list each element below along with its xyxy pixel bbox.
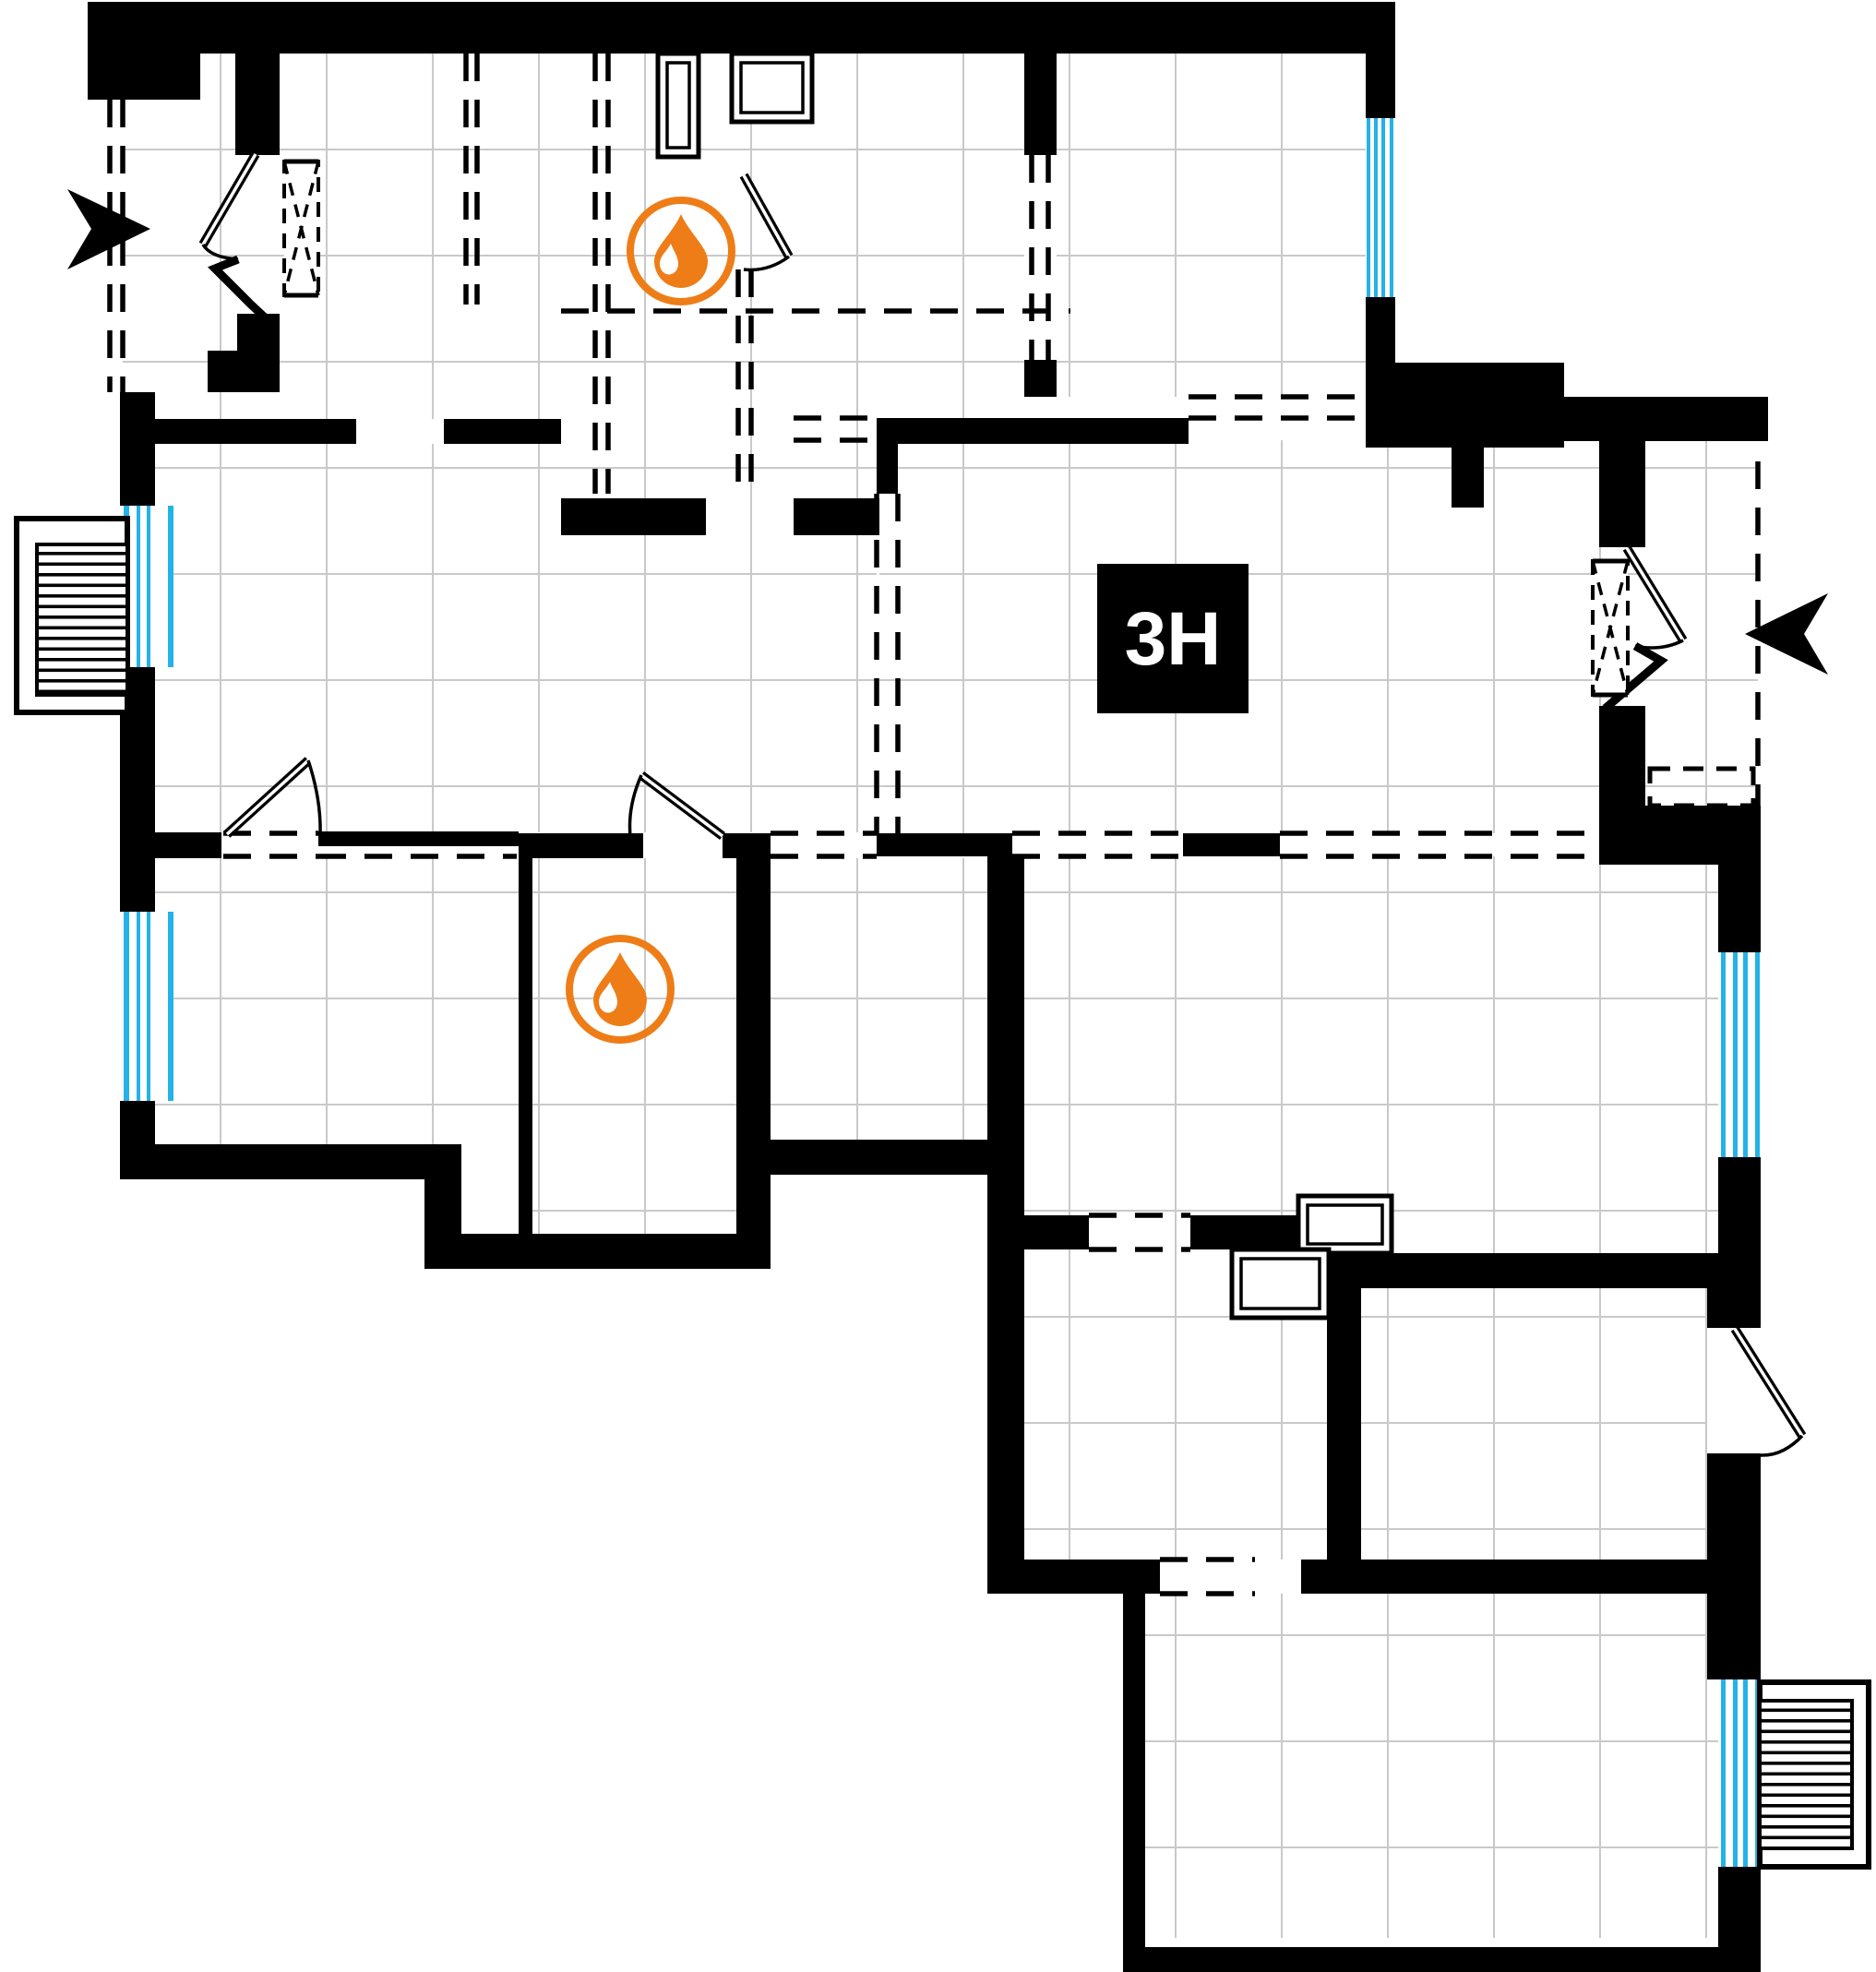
- radiator-fins: [1760, 1701, 1852, 1848]
- wall-segment: [1599, 441, 1645, 547]
- unit-label-group: 3Н: [1097, 564, 1249, 713]
- window-glazing-line: [1743, 952, 1748, 1157]
- wall-segment: [1707, 1288, 1761, 1328]
- radiator-grille: [1760, 1682, 1869, 1867]
- wall-segment: [1123, 1594, 1145, 1972]
- window-glazing-line: [147, 912, 150, 1101]
- window-glazing-line: [124, 912, 129, 1101]
- wall-segment: [1643, 806, 1761, 865]
- window-glazing-line: [137, 912, 140, 1101]
- room-floor: [1361, 1288, 1707, 1560]
- wall-segment: [88, 2, 200, 100]
- wall-segment: [503, 419, 510, 444]
- wall-segment: [1301, 1560, 1718, 1594]
- floor-plan-drawing: 3Н: [0, 0, 1876, 1972]
- wall-segment: [120, 832, 221, 858]
- window-glazing-line: [1733, 952, 1738, 1157]
- vent-shaft-icon: [284, 161, 318, 295]
- window-glazing-line: [1733, 1679, 1738, 1867]
- wall-segment: [723, 833, 771, 858]
- wall-segment: [757, 1140, 1024, 1175]
- wall-segment: [120, 392, 155, 506]
- window-glazing-line: [168, 506, 173, 667]
- wall-segment: [1366, 363, 1564, 448]
- window-glazing-line: [147, 506, 150, 667]
- wall-segment: [1366, 54, 1395, 118]
- wall-segment: [452, 1234, 771, 1269]
- wall-segment: [1024, 1215, 1089, 1249]
- room-floor: [771, 858, 987, 1140]
- floor-plan-page: 3Н: [0, 0, 1876, 1972]
- wall-segment: [987, 856, 1024, 1594]
- window-glazing-line: [1755, 952, 1760, 1157]
- room-floor: [123, 54, 561, 419]
- wall-segment: [877, 833, 1012, 856]
- wall-segment: [794, 498, 879, 535]
- wall-segment: [120, 1144, 434, 1179]
- window-glazing-line: [137, 506, 140, 667]
- window-glazing-line: [1374, 118, 1378, 297]
- wall-segment: [208, 351, 280, 392]
- wall-segment: [736, 858, 771, 1269]
- wall-segment: [235, 54, 280, 155]
- wall-segment: [519, 845, 532, 1234]
- wall-segment: [1599, 706, 1645, 865]
- window-glazing-line: [1721, 952, 1726, 1157]
- wall-segment: [561, 498, 706, 535]
- wall-segment: [1123, 1947, 1761, 1972]
- window-glazing-line: [1721, 1679, 1726, 1867]
- wall-segment: [1024, 360, 1057, 397]
- wall-segment: [987, 1560, 1160, 1594]
- window-glazing-line: [168, 912, 173, 1101]
- wall-segment: [1718, 865, 1761, 952]
- window-glazing-line: [1743, 1679, 1748, 1867]
- radiator-grille: [17, 519, 127, 712]
- window-glazing-line: [1367, 118, 1370, 297]
- wall-segment: [1452, 448, 1484, 508]
- room-floor: [120, 444, 877, 832]
- window-glazing-line: [1390, 118, 1393, 297]
- radiator-fins: [37, 544, 127, 695]
- wall-segment: [444, 419, 561, 444]
- vent-shaft-icon: [1593, 561, 1628, 695]
- wall-segment: [1183, 833, 1280, 856]
- unit-label: 3Н: [1125, 597, 1222, 681]
- wall-segment: [1024, 54, 1057, 155]
- wall-segment: [1707, 1453, 1761, 1679]
- wall-segment: [349, 419, 356, 444]
- room-floor: [532, 858, 736, 1234]
- wall-segment: [318, 831, 519, 846]
- room-floor: [1057, 54, 1366, 397]
- window-glazing-line: [1381, 118, 1385, 297]
- wall-segment: [1564, 397, 1768, 441]
- wall-segment: [1327, 1249, 1361, 1594]
- wall-segment: [877, 418, 1189, 444]
- wall-segment: [120, 419, 356, 444]
- wall-segment: [519, 833, 643, 858]
- room-floor: [1144, 1594, 1718, 1938]
- wall-segment: [1361, 1253, 1761, 1288]
- room-floor: [155, 858, 519, 1144]
- wall-segment: [88, 2, 1395, 54]
- niche-outline: [658, 54, 699, 157]
